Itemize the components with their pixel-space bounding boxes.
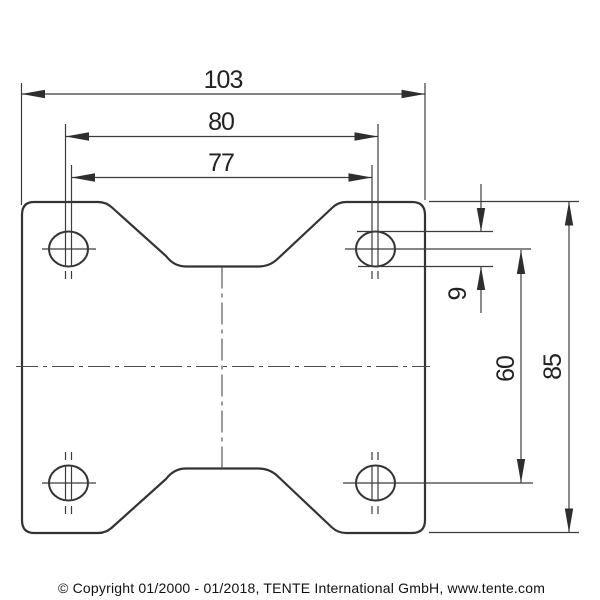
copyright-text: © Copyright 01/2000 - 01/2018, TENTE Int… bbox=[58, 580, 545, 596]
arrow-up-icon bbox=[565, 202, 573, 226]
drawing-canvas: 103 80 77 9 60 85 © C bbox=[0, 0, 600, 600]
arrow-down-icon bbox=[517, 459, 525, 483]
dim-hole-pitch-vertical-label: 60 bbox=[492, 356, 520, 382]
dim-plate-width-label: 103 bbox=[204, 66, 243, 94]
arrow-down-icon bbox=[477, 208, 485, 232]
dim-slot-width-label: 9 bbox=[444, 287, 472, 300]
arrow-left-icon bbox=[66, 132, 90, 140]
center-lines bbox=[16, 267, 430, 469]
arrow-down-icon bbox=[565, 509, 573, 533]
arrow-left-icon bbox=[22, 90, 46, 98]
arrow-right-icon bbox=[355, 132, 379, 140]
mounting-plate-drawing: 103 80 77 9 60 85 © C bbox=[0, 0, 600, 600]
dimension-hole-pitch-outer: 80 bbox=[66, 108, 379, 141]
dim-plate-height-label: 85 bbox=[539, 354, 567, 380]
hole-center-marks bbox=[42, 124, 533, 514]
arrow-left-icon bbox=[72, 173, 96, 181]
dimension-hole-pitch-vertical: 60 bbox=[492, 250, 525, 483]
arrow-up-icon bbox=[517, 250, 525, 274]
arrow-up-icon bbox=[477, 267, 485, 291]
arrow-right-icon bbox=[349, 173, 373, 181]
arrow-right-icon bbox=[402, 90, 426, 98]
dimension-hole-pitch-inner: 77 bbox=[72, 149, 373, 182]
dim-hole-pitch-outer-label: 80 bbox=[208, 108, 234, 136]
dim-hole-pitch-inner-label: 77 bbox=[208, 149, 234, 177]
